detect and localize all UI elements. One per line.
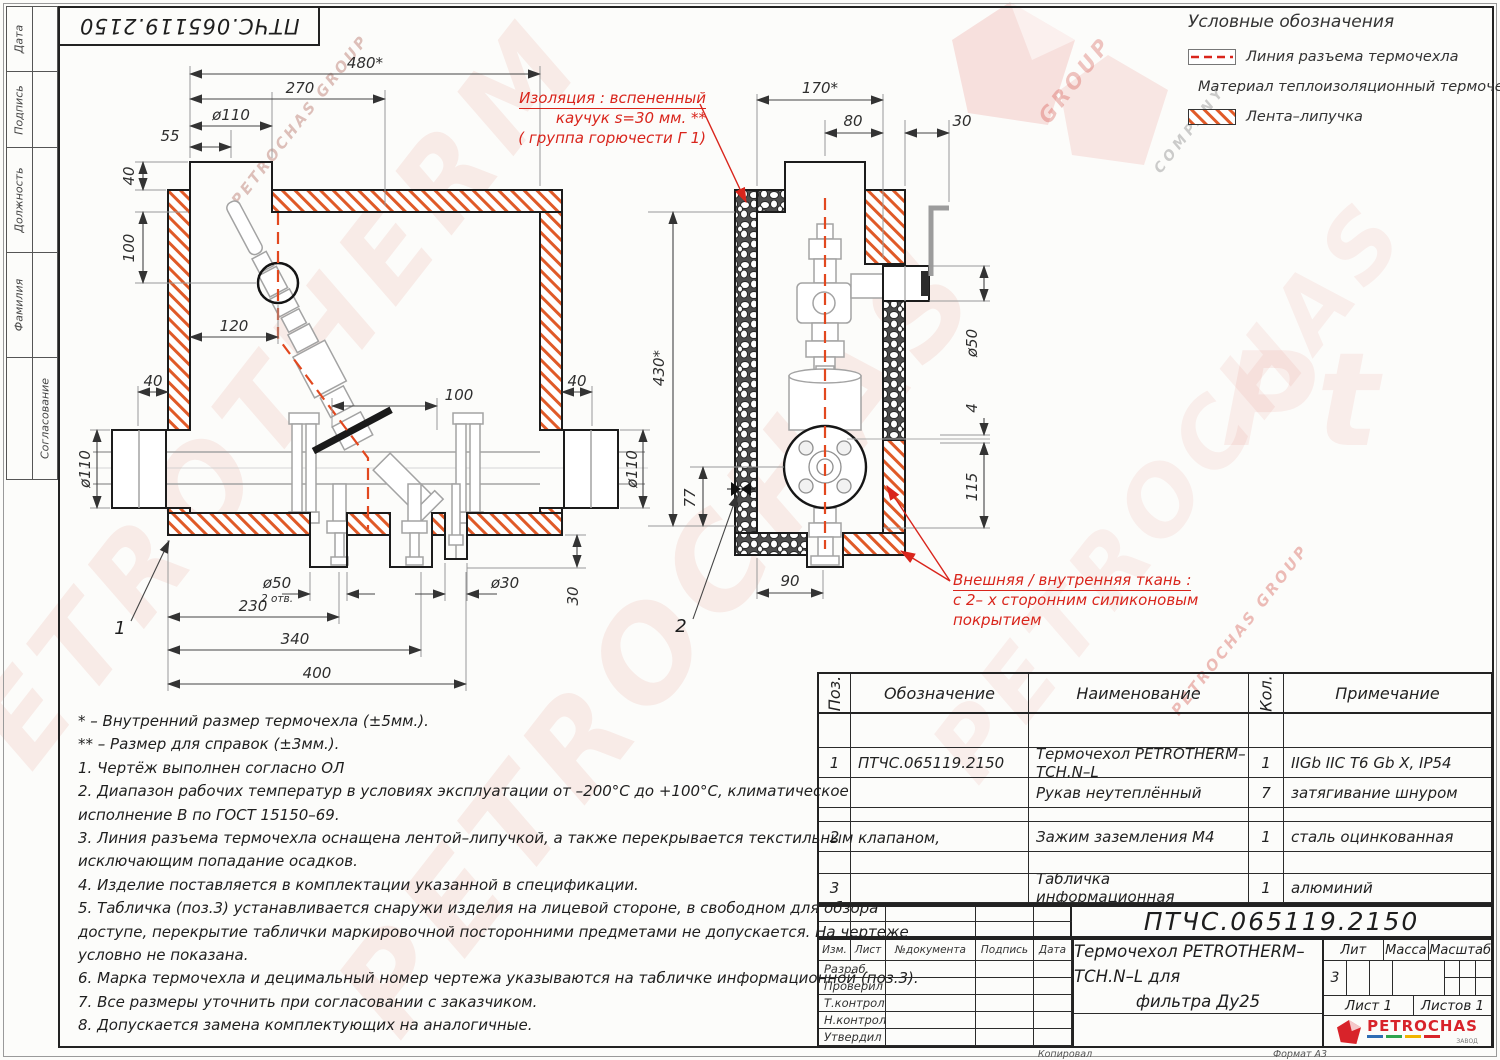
callout-insulation-line2: каучук s=30 мм. ** — [498, 108, 706, 128]
parts-cell: Зажим заземления М4 — [1029, 822, 1249, 852]
stamp-lit-value: 3 — [1324, 961, 1347, 995]
stamp-col-izm: Изм. — [819, 940, 851, 961]
dim-side-90: 90 — [780, 572, 799, 590]
parts-cell: 3 — [819, 874, 851, 903]
legend-label-velcro: Лента–липучка — [1246, 109, 1363, 125]
note-line: * – Внутренний размер термочехла (±5мм.)… — [78, 710, 813, 733]
parts-cell: алюминий — [1284, 874, 1491, 903]
parts-cell: 7 — [1249, 778, 1284, 808]
legend: Условные обозначения Линия разъема термо… — [1188, 12, 1488, 132]
stamp-col-list: Лист — [851, 940, 886, 961]
title-block-signatures: Изм. Лист №документа Подпись Дата Разраб… — [819, 940, 1072, 1046]
note-line: 5. Табличка (поз.3) устанавливается снар… — [78, 897, 813, 920]
callout-insulation: Изоляция : вспененный каучук s=30 мм. **… — [498, 88, 706, 148]
parts-cell — [1249, 852, 1284, 874]
stamp-scale-label: Масштаб — [1429, 940, 1491, 960]
margin-label-date: Дата — [13, 0, 26, 79]
dim-side-total-width: 170* — [802, 79, 839, 97]
petrochas-gem-icon — [1337, 1020, 1361, 1044]
note-line: 2. Диапазон рабочих температур в условия… — [78, 780, 813, 803]
stamp-mass-label: Масса — [1384, 940, 1430, 960]
parts-cell — [851, 852, 1029, 874]
parts-cell: Рукав неутеплённый — [1029, 778, 1249, 808]
parts-cell: 1 — [1249, 748, 1284, 778]
parts-cell — [1284, 714, 1491, 748]
dim-front-400: 400 — [303, 664, 332, 682]
legend-label-split-line: Линия разъема термочехла — [1246, 49, 1459, 65]
dim-front-340: 340 — [281, 630, 310, 648]
legend-label-insulation: Материал теплоизоляционный термочехла — [1198, 79, 1500, 95]
margin-box-date: Дата — [6, 6, 58, 72]
parts-cell — [1029, 808, 1249, 822]
parts-cell — [851, 874, 1029, 903]
parts-cell — [819, 852, 851, 874]
parts-cell: 2 — [819, 822, 851, 852]
stamp-role-ncontrol: Н.контроль — [819, 1012, 886, 1029]
notes-block: * – Внутренний размер термочехла (±5мм.)… — [78, 710, 813, 1038]
parts-cell: 1 — [1249, 822, 1284, 852]
stamp-role-tcontrol: Т.контроль — [819, 995, 886, 1012]
stamp-role-checked: Проверил — [819, 978, 886, 995]
dim-side-30: 30 — [952, 112, 971, 130]
parts-table: Поз. Обозначение Наименование Кол. Приме… — [817, 672, 1493, 905]
margin-label-approval: Согласование — [39, 379, 52, 459]
doc-number-rotated-box: ПТЧС.065119.2150 — [58, 6, 320, 46]
parts-cell — [1249, 808, 1284, 822]
parts-cell: ПТЧС.065119.2150 — [851, 748, 1029, 778]
parts-cell — [851, 822, 1029, 852]
dim-front-drain-dia: ø50 — [262, 574, 291, 592]
stamp-role-developed: Разраб. — [819, 961, 886, 978]
petrochas-logo: PETROCHAS ЗАВОД — [1324, 1016, 1491, 1048]
dim-front-pipe-dia-right: ø110 — [623, 450, 641, 489]
parts-cell — [819, 714, 851, 748]
parts-cell — [1029, 852, 1249, 874]
front-position-leader-1: 1 — [114, 618, 125, 639]
dim-front-d30: ø30 — [490, 574, 519, 592]
margin-label-position: Должность — [13, 160, 26, 240]
front-pipe-flanges — [112, 430, 618, 508]
parts-header-qty: Кол. — [1257, 675, 1276, 711]
engineering-drawing-sheet: PETROTHERM PETROCHAS PETROCHAS PETROCHAS… — [0, 0, 1500, 1060]
legend-item-velcro: Лента–липучка — [1188, 102, 1488, 132]
margin-box-surname: Фамилия — [6, 253, 58, 358]
parts-cell — [851, 808, 1029, 822]
parts-cell — [1284, 852, 1491, 874]
dim-side-115: 115 — [963, 473, 981, 502]
doc-number-rotated: ПТЧС.065119.2150 — [79, 14, 300, 38]
dim-side-80: 80 — [843, 112, 862, 130]
legend-item-split-line: Линия разъема термочехла — [1188, 42, 1488, 72]
stamp-role-approved: Утвердил — [819, 1029, 886, 1046]
dim-front-v30: 30 — [564, 586, 582, 605]
legend-item-insulation: Материал теплоизоляционный термочехла — [1188, 72, 1488, 102]
parts-cell — [851, 778, 1029, 808]
front-top-neck — [190, 162, 272, 212]
dim-front-total-width: 480* — [347, 54, 384, 72]
note-line: ** – Размер для справок (±3мм.). — [78, 733, 813, 756]
margin-label-surname: Фамилия — [13, 265, 26, 345]
callout-fabric-line3: покрытием — [953, 610, 1203, 630]
dim-front-pipe-dia-left: ø110 — [76, 450, 94, 489]
doc-number-main: ПТЧС.065119.2150 — [1072, 907, 1491, 936]
parts-cell — [819, 808, 851, 822]
parts-header-name: Наименование — [1029, 674, 1249, 714]
note-line: доступе, перекрытие таблички маркировочн… — [78, 921, 813, 944]
dim-front-mid-100: 100 — [445, 386, 474, 404]
stamp-lit-label: Лит — [1324, 940, 1384, 960]
footer-copied: Копировал — [1010, 1049, 1120, 1060]
dim-front-40v: 40 — [120, 166, 138, 185]
title-block-right: Лит Масса Масштаб 3 Лист 1 — [1322, 940, 1491, 1046]
note-line: 3. Линия разъема термочехла оснащена лен… — [78, 827, 813, 850]
note-line: 6. Марка термочехла и децимальный номер … — [78, 967, 813, 990]
parts-cell: затягивание шнуром — [1284, 778, 1491, 808]
stamp-col-date: Дата — [1034, 940, 1072, 961]
parts-cell: сталь оцинкованная — [1284, 822, 1491, 852]
parts-cell: Термочехол PETROTHERM–TCH.N–L — [1029, 748, 1249, 778]
margin-box-signature: Подпись — [6, 72, 58, 148]
front-view: 480* 270 ø110 55 40 100 120 40 40 100 ø1… — [76, 54, 650, 691]
callout-insulation-line3: ( группа горючести Г 1) — [498, 128, 706, 148]
dim-front-neck-dia: ø110 — [211, 106, 250, 124]
parts-cell — [1284, 808, 1491, 822]
parts-cell: 1 — [819, 748, 851, 778]
parts-cell: Табличка информационная — [1029, 874, 1249, 903]
callout-insulation-line1: Изоляция : вспененный — [519, 89, 706, 109]
dim-side-gap-4: 4 — [963, 403, 981, 413]
note-line: 8. Допускается замена комплектующих на а… — [78, 1014, 813, 1037]
dim-front-120: 120 — [220, 317, 249, 335]
velcro-swatch — [1188, 109, 1236, 125]
revision-cells — [819, 907, 1072, 936]
note-line: исполнение В по ГОСТ 15150–69. — [78, 804, 813, 827]
note-line: условно не показана. — [78, 944, 813, 967]
margin-box-approval: Согласование — [6, 358, 58, 480]
dim-side-outlet-dia: ø50 — [963, 329, 981, 358]
side-internal-equipment — [789, 224, 883, 565]
parts-cell — [819, 778, 851, 808]
legend-title: Условные обозначения — [1188, 12, 1488, 32]
stamp-col-sign: Подпись — [976, 940, 1034, 961]
parts-cell — [1249, 714, 1284, 748]
side-position-leader-2: 2 — [675, 616, 686, 637]
parts-cell: 1 — [1249, 874, 1284, 903]
note-line: исключающим попадание осадков. — [78, 850, 813, 873]
split-line-swatch — [1188, 49, 1236, 65]
callout-fabric-line2: с 2– х сторонним силиконовым — [953, 590, 1203, 610]
side-view: 170* 80 30 ø50 4 115 430* 77 90 2 — [648, 79, 990, 637]
parts-header-designation: Обозначение — [851, 674, 1029, 714]
dim-front-100v: 100 — [120, 234, 138, 263]
parts-cell — [851, 714, 1029, 748]
margin-label-signature: Подпись — [13, 70, 26, 150]
dim-side-total-height: 430* — [650, 349, 668, 386]
petrochas-logo-sub: ЗАВОД — [1367, 1038, 1478, 1045]
stamp-sheet: Лист 1 — [1324, 996, 1414, 1015]
dim-front-wall40-left: 40 — [143, 372, 162, 390]
callout-fabric-line1: Внешняя / внутренняя ткань : — [953, 571, 1191, 591]
side-outlet-end — [921, 271, 929, 296]
parts-header-pos: Поз. — [825, 675, 844, 710]
title-block: Изм. Лист №документа Подпись Дата Разраб… — [817, 938, 1493, 1048]
stamp-col-docnum: №документа — [886, 940, 976, 961]
note-line: 1. Чертёж выполнен согласно ОЛ — [78, 757, 813, 780]
margin-box-position: Должность — [6, 148, 58, 253]
dim-front-230: 230 — [239, 597, 268, 615]
parts-cell — [1029, 714, 1249, 748]
title-block-name: Термочехол PETROTHERM–TCH.N–L для фильтр… — [1072, 940, 1322, 1046]
dim-front-wall40-right: 40 — [567, 372, 586, 390]
dim-side-77: 77 — [681, 488, 699, 508]
note-line: 4. Изделие поставляется в комплектации у… — [78, 874, 813, 897]
doc-number-band: ПТЧС.065119.2150 — [817, 905, 1493, 938]
petrochas-logo-text: PETROCHAS — [1367, 1020, 1478, 1033]
footer-format: Формат А3 — [1250, 1049, 1350, 1060]
stamp-sheets: Листов 1 — [1414, 996, 1491, 1015]
parts-cell: IIGb IIC T6 Gb X, IP54 — [1284, 748, 1491, 778]
dim-front-270: 270 — [286, 79, 315, 97]
dim-front-55: 55 — [160, 127, 179, 145]
drawing-title-line1: Термочехол PETROTHERM–TCH.N–L для — [1074, 939, 1322, 989]
parts-header-note: Примечание — [1284, 674, 1491, 714]
drawing-title-line2: фильтра Ду25 — [1136, 989, 1260, 1014]
callout-fabric: Внешняя / внутренняя ткань : с 2– х стор… — [953, 570, 1203, 630]
note-line: 7. Все размеры уточнить при согласовании… — [78, 991, 813, 1014]
